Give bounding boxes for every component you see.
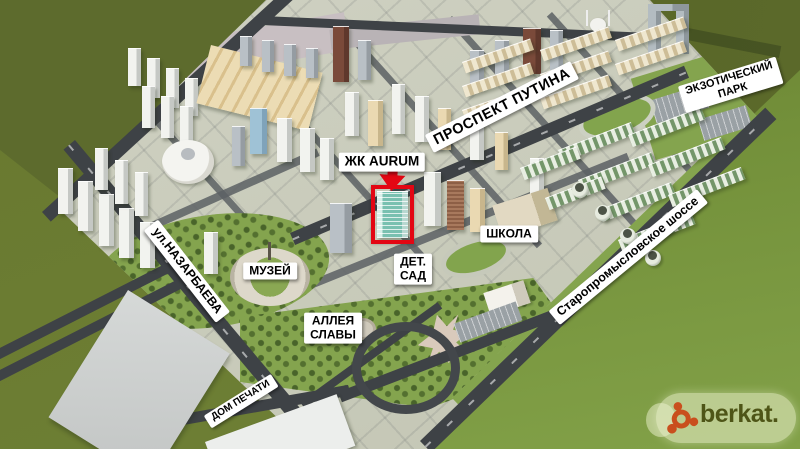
building <box>128 48 141 86</box>
gate-crossbar <box>648 4 689 11</box>
brand-name: berkat. <box>700 400 778 429</box>
label-line: САД <box>400 269 426 283</box>
poi-label-alley-of-glory: АЛЛЕЯ СЛАВЫ <box>304 313 362 344</box>
building <box>147 58 160 98</box>
poi-label-museum: МУЗЕЙ <box>243 263 297 280</box>
monument <box>268 242 271 260</box>
gate-tower <box>648 4 661 54</box>
poi-label-zhk-aurum: ЖК AURUM <box>339 153 425 172</box>
poi-label-school: ШКОЛА <box>480 226 538 243</box>
label-line: СЛАВЫ <box>310 328 356 342</box>
masterplan-map: ПРОСПЕКТ ПУТИНА ЖК AURUM ЭКЗОТИЧЕСКИЙ ПА… <box>0 0 800 449</box>
gate-tower <box>676 4 689 54</box>
poi-label-kindergarten: ДЕТ. САД <box>394 254 432 285</box>
label-line: АЛЛЕЯ <box>310 314 356 328</box>
label-line: ДЕТ. <box>400 255 426 269</box>
interchange-loop <box>352 322 460 414</box>
brand-watermark: berkat. <box>656 393 796 443</box>
